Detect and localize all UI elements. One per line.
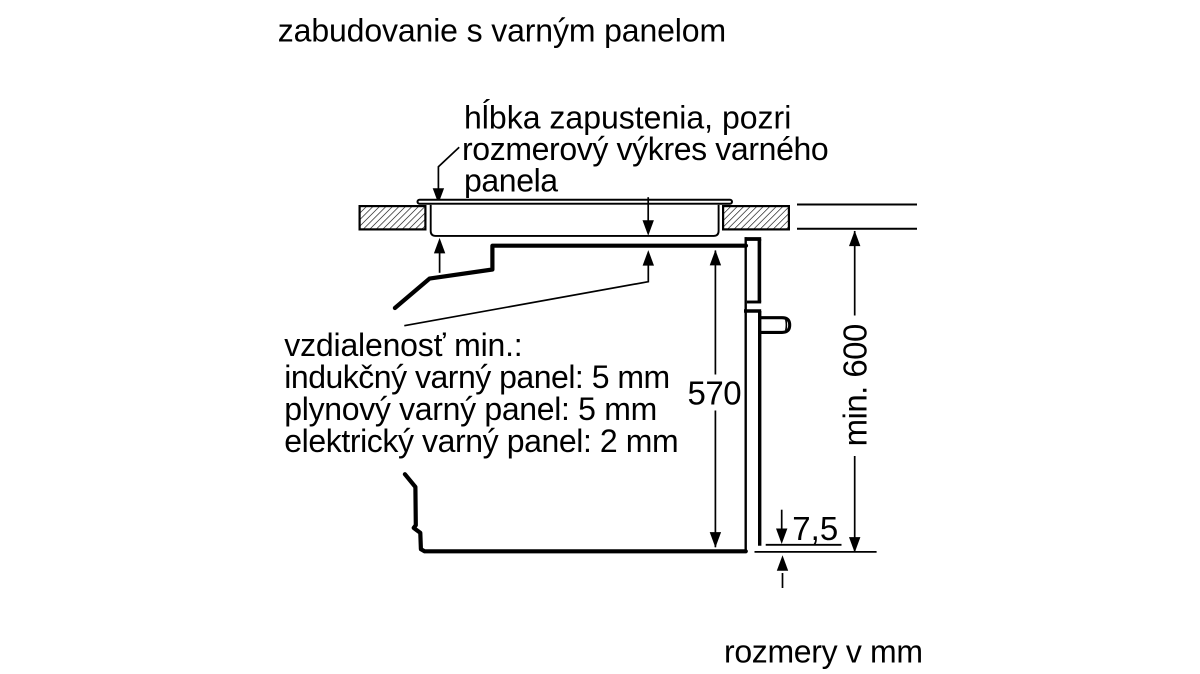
svg-text:rozmerový výkres varného: rozmerový výkres varného — [462, 131, 828, 167]
svg-text:zabudovanie s varným panelom: zabudovanie s varným panelom — [278, 12, 726, 48]
svg-text:vzdialenosť min.:: vzdialenosť min.: — [284, 327, 522, 363]
svg-text:rozmery v mm: rozmery v mm — [724, 634, 923, 670]
svg-text:570: 570 — [688, 375, 742, 412]
svg-text:min. 600: min. 600 — [836, 324, 873, 446]
svg-text:7,5: 7,5 — [792, 510, 838, 547]
svg-text:indukčný varný panel: 5 mm: indukčný varný panel: 5 mm — [284, 359, 669, 395]
svg-text:plynový varný panel: 5 mm: plynový varný panel: 5 mm — [284, 391, 657, 427]
svg-text:hĺbka zapustenia, pozri: hĺbka zapustenia, pozri — [464, 99, 791, 135]
svg-text:panela: panela — [464, 163, 558, 199]
svg-text:elektrický varný panel: 2 mm: elektrický varný panel: 2 mm — [284, 423, 678, 459]
